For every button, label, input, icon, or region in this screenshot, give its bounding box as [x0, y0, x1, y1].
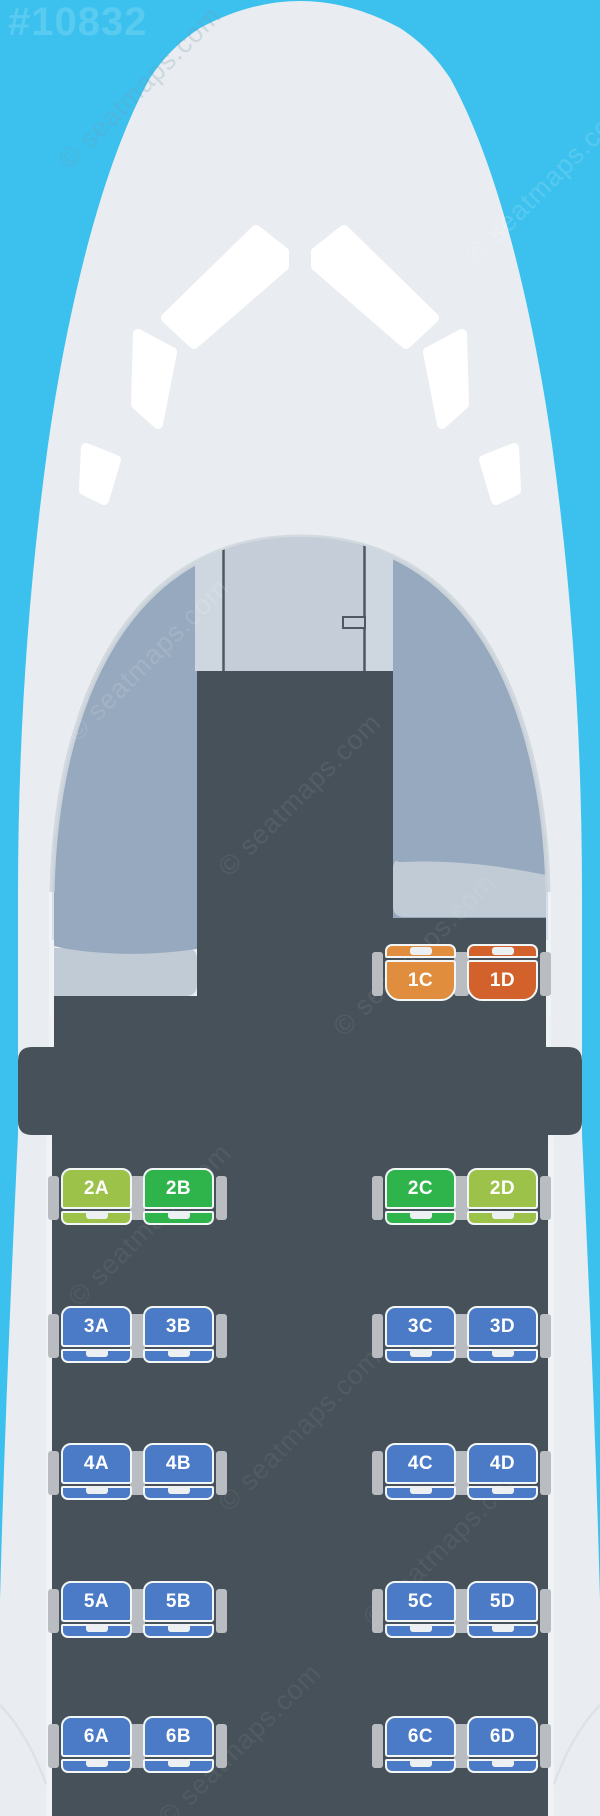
seat-label: 4A: [84, 1453, 109, 1475]
seat-cushion: [385, 1211, 456, 1225]
seat-cushion-notch: [168, 1486, 190, 1494]
seat-cushion: [61, 1349, 132, 1363]
seat-cushion: [385, 1759, 456, 1773]
wall-highlight-left-upper: [49, 892, 54, 1047]
seat-label: 2C: [408, 1178, 433, 1200]
seat-back: 3D: [467, 1306, 538, 1347]
seat-cushion: [61, 1759, 132, 1773]
seat-label: 4D: [490, 1453, 515, 1475]
seat-label: 3D: [490, 1316, 515, 1338]
seat-label: 2A: [84, 1178, 109, 1200]
seat-label: 4C: [408, 1453, 433, 1475]
seat-label: 2D: [490, 1178, 515, 1200]
seat-label: 6A: [84, 1726, 109, 1748]
seat-back: 3A: [61, 1306, 132, 1347]
seat-cushion-notch: [410, 1349, 432, 1357]
map-reference-number: #10832: [8, 0, 147, 45]
seat-4B[interactable]: 4B: [143, 1443, 214, 1500]
seat-back: 4B: [143, 1443, 214, 1484]
seat-cushion-notch: [492, 1624, 514, 1632]
seat-cushion-notch: [86, 1211, 108, 1219]
seat-cushion-notch: [168, 1759, 190, 1767]
seat-cushion-notch: [492, 1486, 514, 1494]
seat-cushion-notch: [168, 1349, 190, 1357]
seat-back: 2C: [385, 1168, 456, 1209]
seat-cushion: [467, 1211, 538, 1225]
seat-cushion-notch: [168, 1624, 190, 1632]
seat-label: 6C: [408, 1726, 433, 1748]
cockpit-bulkhead-panel: [223, 530, 364, 671]
seat-label: 6B: [166, 1726, 191, 1748]
seat-6C[interactable]: 6C: [385, 1716, 456, 1773]
seat-cushion: [61, 1624, 132, 1638]
cockpit-window-left-lower: [84, 448, 116, 500]
seat-cushion: [143, 1211, 214, 1225]
seat-back: 2A: [61, 1168, 132, 1209]
seat-back: 2D: [467, 1168, 538, 1209]
seat-cushion: [467, 944, 538, 958]
seat-4C[interactable]: 4C: [385, 1443, 456, 1500]
seat-label: 5C: [408, 1591, 433, 1613]
seat-cushion: [385, 944, 456, 958]
seat-1C[interactable]: 1C: [385, 944, 456, 1001]
seat-3A[interactable]: 3A: [61, 1306, 132, 1363]
seat-label: 5B: [166, 1591, 191, 1613]
seat-cushion: [467, 1349, 538, 1363]
seat-cushion: [467, 1486, 538, 1500]
seatmap-viewer: #10832 © seatmaps.com © seatmaps.com © s…: [0, 0, 600, 1816]
seat-cushion: [143, 1624, 214, 1638]
seat-3C[interactable]: 3C: [385, 1306, 456, 1363]
seat-cushion-notch: [492, 1759, 514, 1767]
seat-cushion-notch: [410, 947, 432, 955]
seat-back: 2B: [143, 1168, 214, 1209]
seat-2B[interactable]: 2B: [143, 1168, 214, 1225]
seat-cushion-notch: [86, 1486, 108, 1494]
seat-2A[interactable]: 2A: [61, 1168, 132, 1225]
seat-1D[interactable]: 1D: [467, 944, 538, 1001]
seat-cushion-notch: [492, 1349, 514, 1357]
seat-cushion: [61, 1486, 132, 1500]
seat-back: 3B: [143, 1306, 214, 1347]
seat-back: 6D: [467, 1716, 538, 1757]
seat-cushion: [143, 1349, 214, 1363]
seat-label: 6D: [490, 1726, 515, 1748]
cockpit-door-handle: [343, 617, 365, 628]
seat-back: 6A: [61, 1716, 132, 1757]
seat-label: 1C: [408, 970, 433, 992]
seat-cushion: [467, 1759, 538, 1773]
seat-label: 1D: [490, 970, 515, 992]
seat-3D[interactable]: 3D: [467, 1306, 538, 1363]
seat-cushion: [61, 1211, 132, 1225]
seat-cushion-notch: [86, 1624, 108, 1632]
sidewall-ledge-left: [54, 948, 197, 996]
seat-back: 6C: [385, 1716, 456, 1757]
seat-2C[interactable]: 2C: [385, 1168, 456, 1225]
seat-cushion-notch: [410, 1624, 432, 1632]
seat-back: 4A: [61, 1443, 132, 1484]
seat-cushion-notch: [86, 1349, 108, 1357]
seat-back: 3C: [385, 1306, 456, 1347]
sidewall-block-left: [54, 836, 197, 954]
seat-back: 1D: [467, 960, 538, 1001]
seat-6B[interactable]: 6B: [143, 1716, 214, 1773]
seat-cushion: [385, 1349, 456, 1363]
seat-cushion-notch: [492, 1211, 514, 1219]
seat-label: 3A: [84, 1316, 109, 1338]
seat-cushion: [143, 1486, 214, 1500]
seat-5B[interactable]: 5B: [143, 1581, 214, 1638]
seat-cushion-notch: [86, 1759, 108, 1767]
seat-label: 5A: [84, 1591, 109, 1613]
seat-label: 4B: [166, 1453, 191, 1475]
seat-label: 2B: [166, 1178, 191, 1200]
seat-back: 5A: [61, 1581, 132, 1622]
aircraft-illustration: [0, 0, 600, 1816]
seat-5C[interactable]: 5C: [385, 1581, 456, 1638]
seat-label: 3B: [166, 1316, 191, 1338]
seat-6A[interactable]: 6A: [61, 1716, 132, 1773]
seat-back: 4D: [467, 1443, 538, 1484]
seat-cushion: [385, 1624, 456, 1638]
seat-cushion-notch: [168, 1211, 190, 1219]
seat-back: 5B: [143, 1581, 214, 1622]
seat-cushion: [143, 1759, 214, 1773]
seat-back: 4C: [385, 1443, 456, 1484]
seat-5A[interactable]: 5A: [61, 1581, 132, 1638]
seat-cushion: [467, 1624, 538, 1638]
seat-label: 5D: [490, 1591, 515, 1613]
seat-back: 1C: [385, 960, 456, 1001]
seat-label: 3C: [408, 1316, 433, 1338]
seat-4A[interactable]: 4A: [61, 1443, 132, 1500]
seat-cushion: [385, 1486, 456, 1500]
seat-cushion-notch: [410, 1211, 432, 1219]
seat-cushion-notch: [410, 1486, 432, 1494]
seat-6D[interactable]: 6D: [467, 1716, 538, 1773]
seat-5D[interactable]: 5D: [467, 1581, 538, 1638]
seat-2D[interactable]: 2D: [467, 1168, 538, 1225]
seat-4D[interactable]: 4D: [467, 1443, 538, 1500]
seat-3B[interactable]: 3B: [143, 1306, 214, 1363]
seat-back: 5D: [467, 1581, 538, 1622]
seat-cushion-notch: [410, 1759, 432, 1767]
seat-back: 5C: [385, 1581, 456, 1622]
seat-cushion-notch: [492, 947, 514, 955]
cockpit-window-right-lower: [484, 448, 516, 500]
seat-back: 6B: [143, 1716, 214, 1757]
